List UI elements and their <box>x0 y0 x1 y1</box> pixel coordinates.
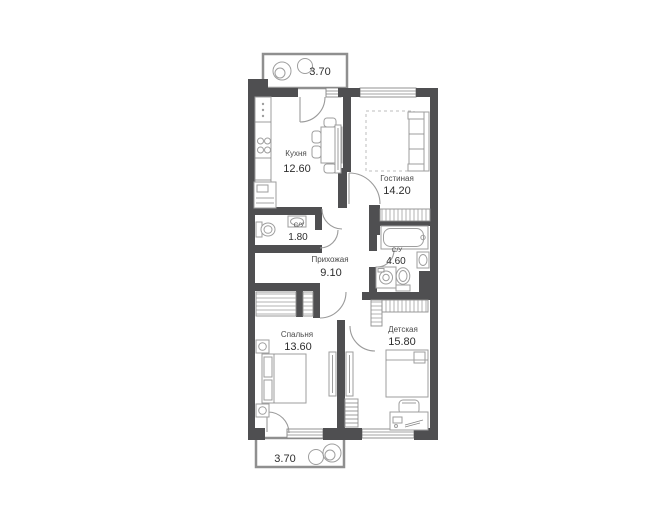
wall-segment <box>338 168 347 208</box>
wall-segment <box>369 235 377 251</box>
room-area-children: 15.80 <box>388 336 416 348</box>
room-area-living: 14.20 <box>383 185 411 197</box>
sink-icon <box>417 252 429 268</box>
door-arc <box>320 292 346 318</box>
room-label-living: Гостиная <box>380 174 414 183</box>
wall-segment <box>372 221 430 226</box>
floor-plan-page: Кухня 12.60 Гостиная 14.20 С/У 1.80 Прих… <box>0 0 671 516</box>
room-area-bath-small: 1.80 <box>288 232 308 243</box>
mirror-icon <box>346 352 353 396</box>
children-furniture <box>345 350 428 430</box>
nightstand-icon <box>256 404 269 417</box>
door-arc <box>320 230 338 248</box>
washing-machine-icon <box>376 267 396 288</box>
balcony-table-icon <box>309 450 324 465</box>
fridge-icon <box>254 182 276 208</box>
wall-segment <box>337 320 345 428</box>
toilet-icon <box>256 222 275 237</box>
wall-segment <box>362 292 430 300</box>
door-arc <box>322 209 342 229</box>
wall-segment <box>338 88 360 97</box>
cabinet-icon <box>262 103 264 117</box>
sofa-icon <box>408 112 429 171</box>
door-arc <box>268 412 289 433</box>
wardrobe-icon <box>371 300 382 326</box>
shelf-icon <box>345 399 358 427</box>
door-arc <box>300 97 325 122</box>
desk-icon <box>390 412 428 430</box>
wall-segment <box>248 245 322 253</box>
wardrobe-icon <box>303 292 313 316</box>
room-label-bedroom: Спальня <box>281 330 313 339</box>
room-label-hallway: Прихожая <box>311 255 348 264</box>
wall-segment <box>248 79 268 88</box>
mirror-icon <box>329 352 336 396</box>
wall-segment <box>369 205 380 235</box>
wall-segment <box>248 428 265 440</box>
room-area-balcony-top: 3.70 <box>309 66 330 78</box>
wall-segment <box>248 88 298 97</box>
door-arc <box>350 326 375 351</box>
room-area-kitchen: 12.60 <box>283 163 311 175</box>
wall-segment <box>315 207 322 230</box>
window-bedroom <box>287 429 323 438</box>
tv-icon <box>335 125 341 173</box>
rug-outline <box>366 111 414 171</box>
wardrobe-icon <box>382 300 428 312</box>
room-label-bath-small: С/У <box>294 222 306 229</box>
living-furniture <box>366 111 429 171</box>
wardrobe-icon <box>380 209 430 221</box>
wall-segment <box>313 283 320 318</box>
wall-segment <box>248 283 320 291</box>
nightstand-icon <box>256 340 269 353</box>
chair-icon <box>324 118 336 127</box>
wall-segment <box>416 88 438 97</box>
chair-icon <box>312 146 321 158</box>
double-bed-icon <box>262 354 306 403</box>
wall-segment <box>248 88 255 433</box>
wall-segment <box>296 291 303 317</box>
chair-icon <box>324 164 336 173</box>
wardrobe-icon <box>256 292 296 316</box>
room-label-bath-large: С/У <box>392 247 404 254</box>
room-area-bedroom: 13.60 <box>284 341 312 353</box>
single-bed-icon <box>386 350 428 397</box>
bathtub-icon <box>381 226 428 249</box>
stove-icon <box>258 138 271 153</box>
room-label-children: Детская <box>388 325 418 334</box>
room-area-balcony-bottom: 3.70 <box>274 453 295 465</box>
window-living <box>360 88 416 97</box>
floor-plan: Кухня 12.60 Гостиная 14.20 С/У 1.80 Прих… <box>0 0 671 516</box>
balcony-bottom <box>256 438 344 467</box>
room-label-kitchen: Кухня <box>285 149 306 158</box>
wall-segment <box>323 428 362 440</box>
room-area-hallway: 9.10 <box>320 267 341 279</box>
room-area-bath-large: 4.60 <box>386 256 406 267</box>
wall-segment <box>343 97 351 172</box>
wall-segment <box>430 88 438 440</box>
wall-segment <box>419 271 430 292</box>
balcony-top <box>263 54 347 88</box>
chair-icon <box>312 131 321 143</box>
toilet-icon <box>396 268 410 291</box>
door-arc <box>349 173 380 204</box>
